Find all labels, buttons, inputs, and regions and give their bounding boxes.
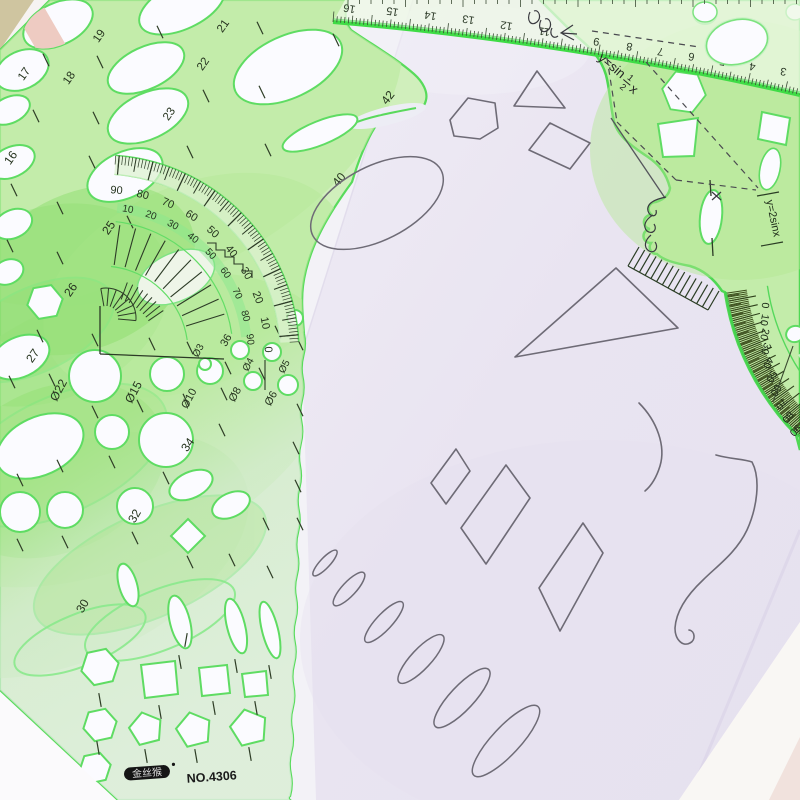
- svg-text:0: 0: [262, 346, 274, 353]
- svg-text:90: 90: [110, 184, 123, 197]
- svg-text:10: 10: [757, 313, 771, 327]
- svg-text:90: 90: [243, 333, 255, 346]
- svg-text:15: 15: [386, 4, 400, 18]
- svg-text:12: 12: [500, 18, 514, 32]
- svg-text:14: 14: [424, 8, 438, 22]
- svg-text:10: 10: [258, 316, 272, 330]
- svg-text:16: 16: [343, 1, 357, 15]
- svg-text:13: 13: [462, 12, 476, 26]
